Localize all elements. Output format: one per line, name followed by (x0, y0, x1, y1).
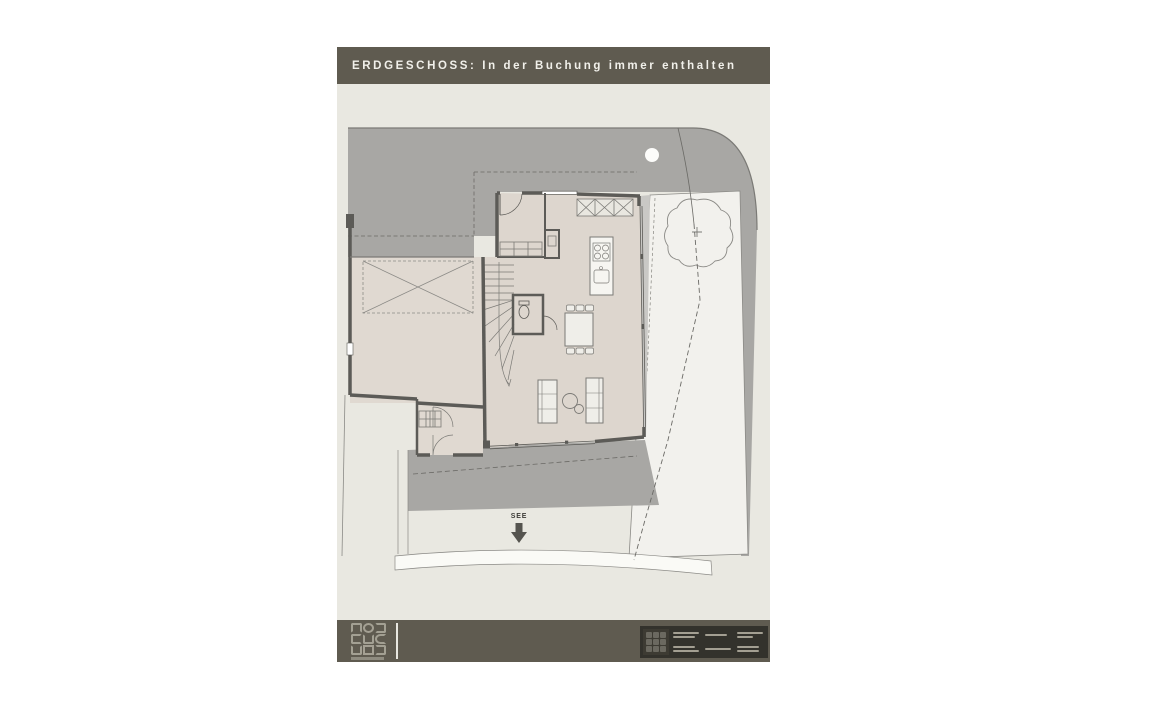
sheet-footer-bar (337, 620, 770, 662)
sheet-title: ERDGESCHOSS: In der Buchung immer enthal… (337, 60, 737, 72)
kitchen-cabinets (577, 199, 633, 216)
footer-divider (396, 623, 398, 659)
grid-logo-icon (351, 623, 393, 655)
floor-plan-svg: SEE (337, 84, 770, 620)
logo-tagline (351, 657, 384, 660)
screenshot-canvas: ERDGESCHOSS: In der Buchung immer enthal… (0, 0, 1152, 708)
see-label: SEE (511, 513, 527, 520)
plan-sheet: ERDGESCHOSS: In der Buchung immer enthal… (337, 40, 770, 668)
architect-stamp-icon (643, 629, 669, 655)
sofa-left (538, 380, 557, 423)
company-logo (351, 623, 393, 659)
title-block-cell (703, 628, 734, 642)
title-block-cell (735, 628, 766, 642)
survey-point-icon (645, 148, 659, 162)
architect-title-block (640, 626, 768, 658)
title-block-cell (671, 628, 702, 642)
dining-table (565, 313, 593, 346)
title-block-cell (703, 643, 734, 657)
fireplace-block (545, 230, 559, 258)
title-block-grid (671, 626, 768, 658)
garage-floor (350, 257, 483, 403)
floor-plan-drawing: SEE (337, 84, 770, 620)
kitchen-island (590, 237, 613, 295)
title-block-cell (671, 643, 702, 657)
sofa-right (586, 378, 603, 423)
title-block-cell (735, 643, 766, 657)
living-floor (483, 193, 644, 448)
sheet-header-bar: ERDGESCHOSS: In der Buchung immer enthal… (337, 47, 770, 84)
